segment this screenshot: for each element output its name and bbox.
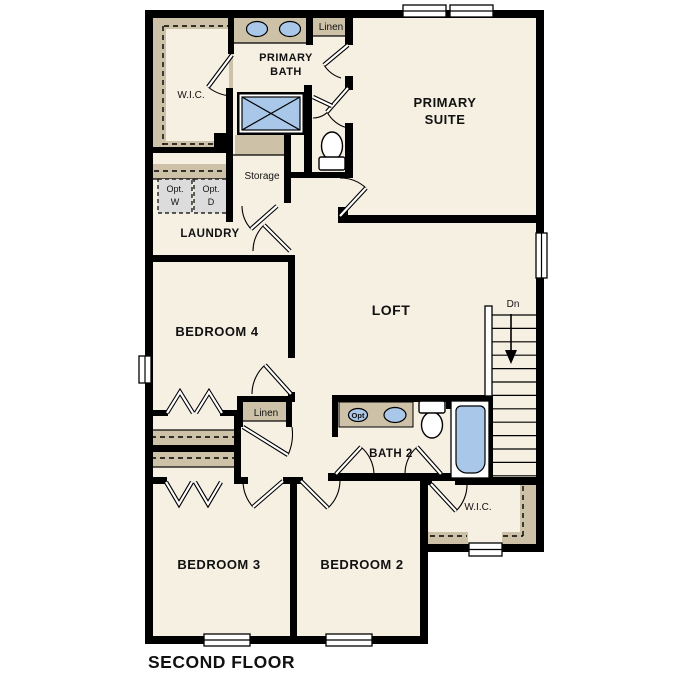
label-laundry: LAUNDRY	[180, 228, 239, 240]
label-primary-suite-1: PRIMARY	[414, 95, 477, 110]
primary-toilet-tank	[319, 157, 345, 170]
floor-plan-page: W.I.C. PRIMARY BATH Linen PRIMARY SUITE …	[0, 0, 687, 687]
label-bedroom4: BEDROOM 4	[175, 324, 259, 339]
bath2-sink	[384, 408, 406, 423]
label-linen-top: Linen	[319, 22, 343, 33]
bath2-toilet-tank	[419, 401, 445, 413]
floor-plan: W.I.C. PRIMARY BATH Linen PRIMARY SUITE …	[0, 0, 687, 687]
bath2-toilet-bowl	[422, 412, 443, 438]
label-bedroom3: BEDROOM 3	[177, 557, 260, 572]
label-stairs-dn: Dn	[507, 299, 520, 310]
closet-shelf-2	[149, 451, 238, 467]
label-primary-bath-2: BATH	[270, 66, 302, 78]
label-storage: Storage	[244, 171, 279, 182]
bathtub	[456, 406, 485, 473]
stair-rail	[485, 306, 492, 396]
label-bedroom2: BEDROOM 2	[320, 557, 403, 572]
label-bath2: BATH 2	[369, 448, 413, 460]
label-opt-dryer-1: Opt.	[202, 184, 219, 194]
label-loft: LOFT	[372, 302, 411, 318]
plan-title: SECOND FLOOR	[148, 652, 295, 672]
closet-shelf-1	[149, 430, 238, 446]
label-linen-hall: Linen	[254, 408, 278, 419]
primary-sink-2	[280, 22, 301, 37]
label-opt-sink: Opt	[352, 411, 365, 420]
primary-sink-1	[247, 22, 268, 37]
label-wic-top: W.I.C.	[177, 90, 204, 101]
storage-counter	[235, 135, 285, 155]
primary-toilet-bowl	[322, 132, 343, 160]
label-primary-bath-1: PRIMARY	[259, 52, 313, 64]
label-primary-suite-2: SUITE	[425, 112, 466, 127]
label-opt-dryer-2: D	[208, 197, 215, 207]
label-wic2: W.I.C.	[464, 502, 491, 513]
wic-top-floor	[166, 29, 229, 141]
label-opt-washer-1: Opt.	[166, 184, 183, 194]
label-opt-washer-2: W	[171, 197, 180, 207]
